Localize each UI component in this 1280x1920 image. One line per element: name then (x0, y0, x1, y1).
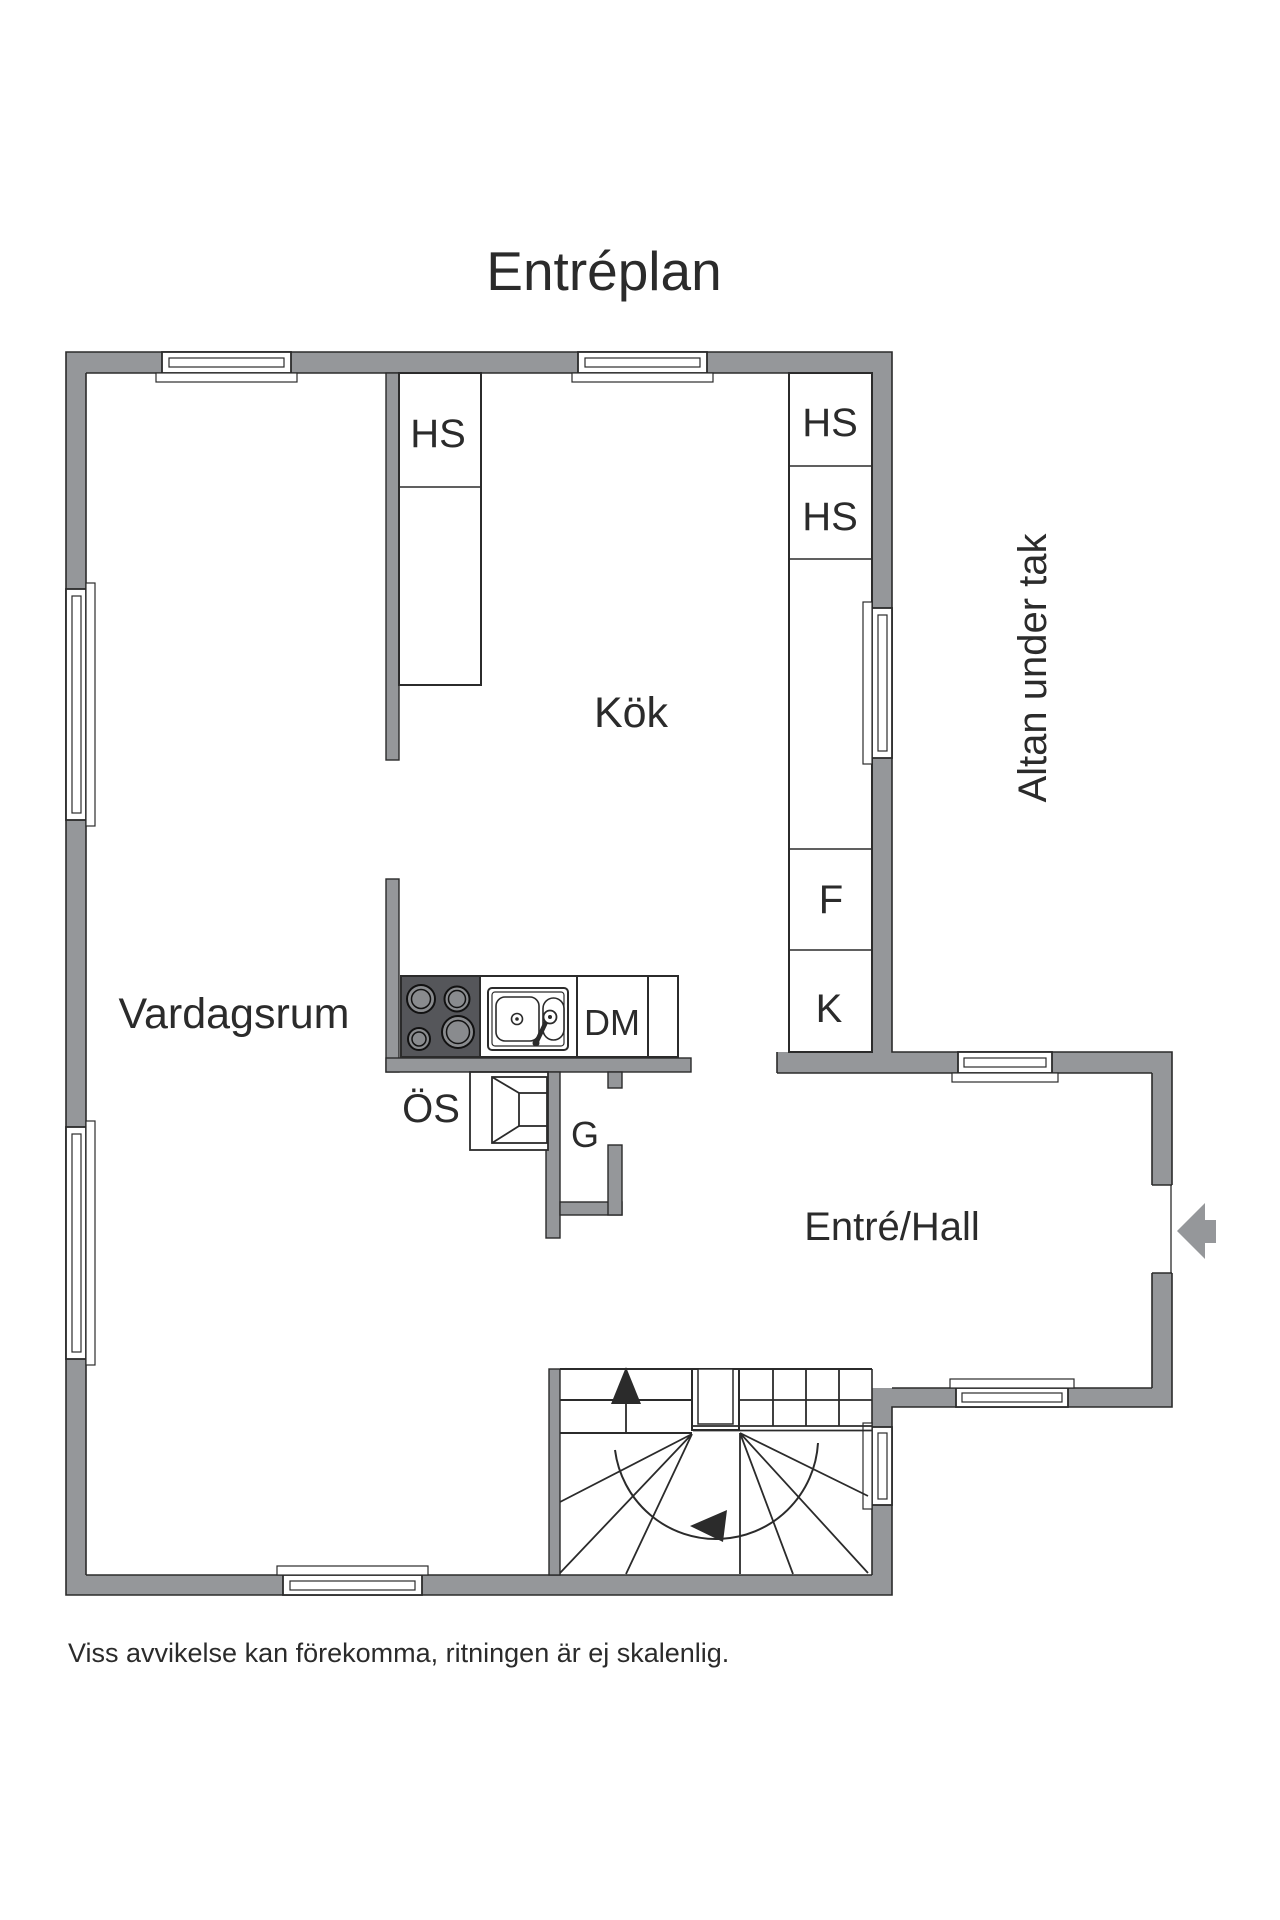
closet-label-hs-top: HS (802, 401, 858, 445)
oven-icon (470, 1072, 548, 1150)
label-wardrobe: G (571, 1114, 599, 1155)
window (66, 1121, 95, 1365)
floor-plan-page: Entréplan Vardagsrum Kök Entré/Hall Alta… (0, 0, 1280, 1920)
closet-label-fridge: K (816, 987, 843, 1031)
closet-label-hs-mid: HS (802, 495, 858, 539)
label-oven: ÖS (402, 1087, 460, 1131)
room-label-terrace: Altan under tak (1011, 532, 1055, 802)
page-title: Entréplan (486, 240, 721, 302)
room-label-hall: Entré/Hall (804, 1205, 980, 1249)
counter-end-box (648, 976, 678, 1057)
label-dishwasher: DM (584, 1002, 640, 1043)
window (950, 1379, 1074, 1407)
floor-plan: Entréplan Vardagsrum Kök Entré/Hall Alta… (0, 0, 1280, 1920)
window (66, 583, 95, 826)
sink-icon (488, 988, 568, 1050)
window (277, 1566, 428, 1595)
window (572, 352, 713, 382)
room-label-kitchen: Kök (594, 689, 669, 737)
window (863, 602, 892, 764)
window (156, 352, 297, 382)
disclaimer-text: Viss avvikelse kan förekomma, ritningen … (68, 1638, 729, 1668)
window (952, 1052, 1058, 1082)
closet-label-hs-left: HS (410, 412, 466, 456)
closet-label-freezer: F (819, 878, 843, 922)
room-label-living: Vardagsrum (118, 990, 349, 1038)
